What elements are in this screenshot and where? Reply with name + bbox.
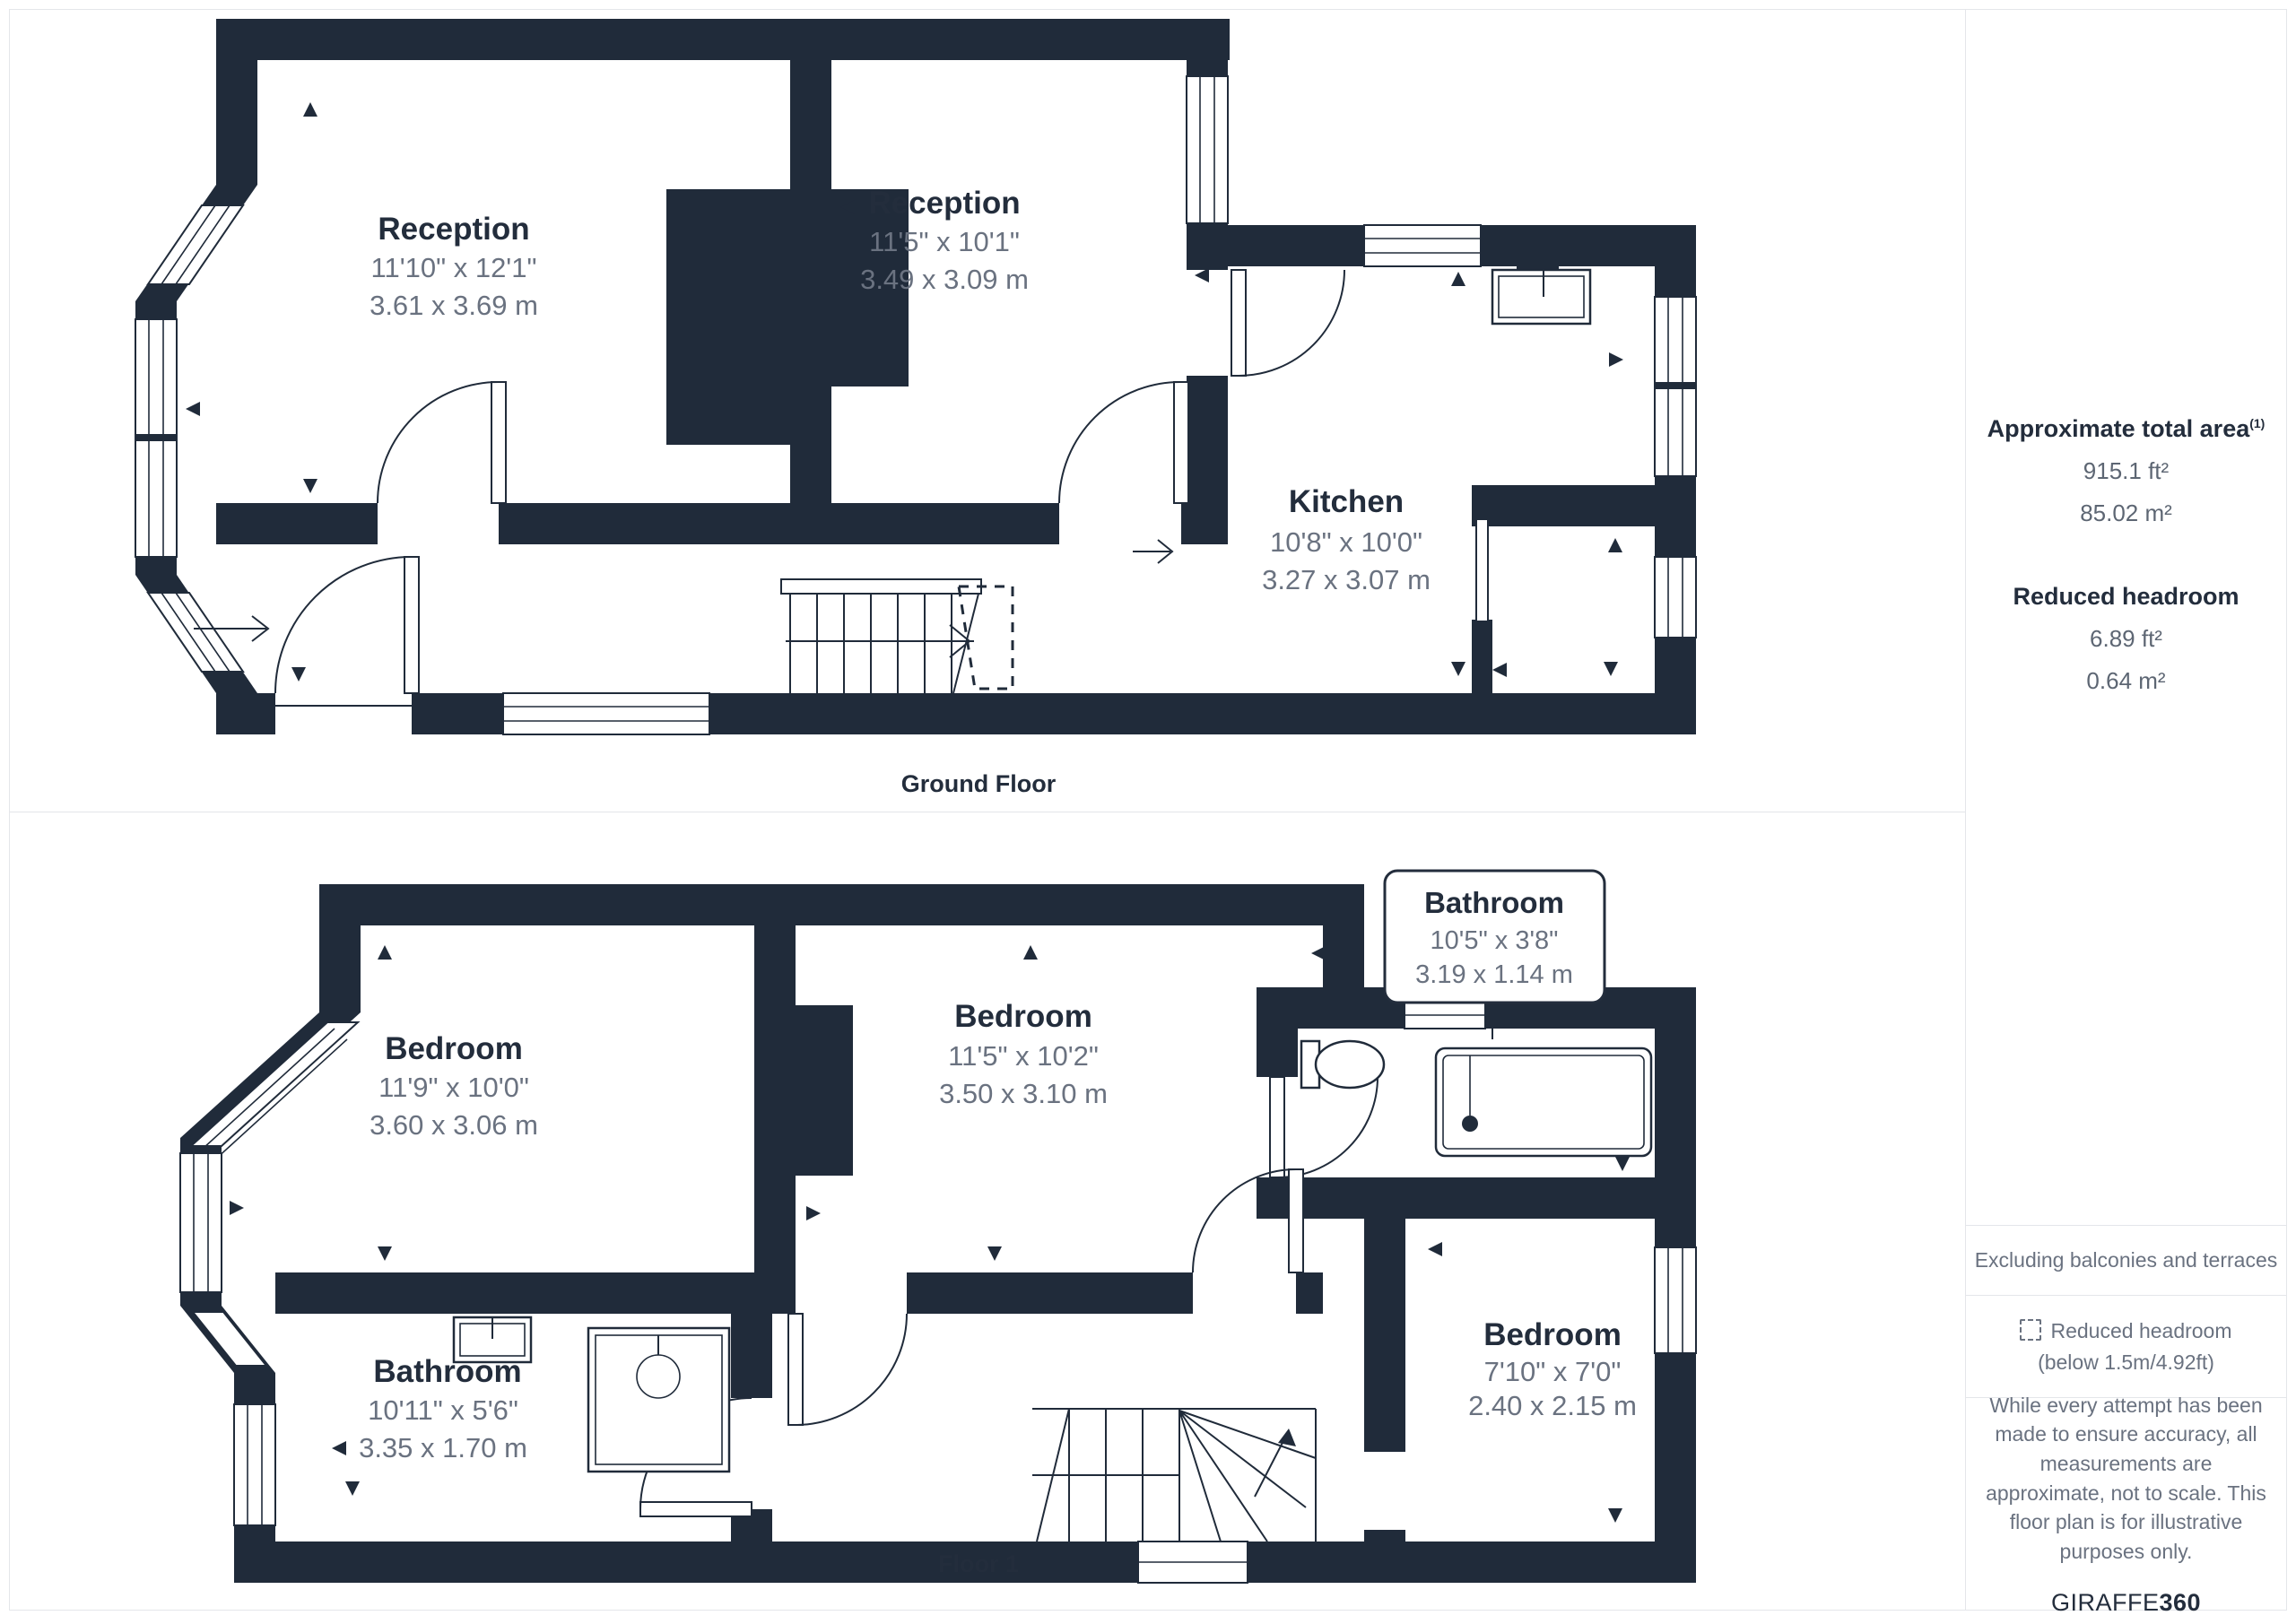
floorplan-column: Reception 11'10" x 12'1" 3.61 x 3.69 m R…: [10, 10, 1966, 1610]
room-dims-imperial: 11'10" x 12'1": [371, 252, 537, 283]
room-dims-metric: 3.61 x 3.69 m: [370, 290, 538, 321]
room-dims-metric: 3.50 x 3.10 m: [939, 1078, 1108, 1109]
floor-1-section: Bathroom 10'5" x 3'8" 3.19 x 1.14 m Bedr…: [10, 812, 1965, 1610]
room-dims-metric: 3.49 x 3.09 m: [860, 264, 1029, 295]
shower: [588, 1328, 729, 1472]
room-dims-metric: 3.27 x 3.07 m: [1262, 564, 1431, 595]
floor-caption-1: Floor 1: [938, 1550, 1019, 1577]
total-area-footnote-marker: (1): [2249, 416, 2265, 430]
legend-text: Reduced headroom: [2050, 1319, 2231, 1342]
room-name: Bedroom: [954, 999, 1092, 1034]
reduced-headroom-legend-box: Reduced headroom (below 1.5m/4.92ft): [1966, 1295, 2286, 1397]
room-name: Bathroom: [373, 1354, 521, 1389]
room-dims-metric: 3.60 x 3.06 m: [370, 1109, 538, 1141]
room-dims-imperial: 10'11" x 5'6": [368, 1394, 518, 1426]
ground-stairs: [781, 579, 1013, 693]
room-label-reception-2: Reception 11'5" x 10'1" 3.49 x 3.09 m: [860, 186, 1029, 295]
floor-caption-ground: Ground Floor: [901, 770, 1057, 797]
disclaimer-box: While every attempt has been made to ens…: [1966, 1397, 2286, 1610]
bathtub: [1436, 1048, 1651, 1156]
reduced-headroom-ft: 6.89 ft²: [1987, 625, 2266, 653]
total-area-m: 85.02 m²: [1987, 499, 2266, 527]
room-dims-imperial: 11'9" x 10'0": [378, 1072, 529, 1103]
info-sidebar: Approximate total area(1) 915.1 ft² 85.0…: [1966, 10, 2286, 1610]
ground-floor-plan: Reception 11'10" x 12'1" 3.61 x 3.69 m R…: [10, 10, 1965, 812]
room-label-bedroom-1: Bedroom 11'9" x 10'0" 3.60 x 3.06 m: [370, 1031, 538, 1141]
room-label-bedroom-3: Bedroom 7'10" x 7'0" 2.40 x 2.15 m: [1468, 1317, 1637, 1421]
room-name: Kitchen: [1289, 484, 1404, 519]
room-dims-imperial: 7'10" x 7'0": [1484, 1356, 1622, 1387]
area-summary-box: Approximate total area(1) 915.1 ft² 85.0…: [1966, 10, 2286, 1225]
room-label-bathroom-left: Bathroom 10'11" x 5'6" 3.35 x 1.70 m: [359, 1354, 527, 1463]
room-name: Bedroom: [385, 1031, 523, 1066]
content-frame: Reception 11'10" x 12'1" 3.61 x 3.69 m R…: [9, 9, 2287, 1611]
excluding-note: Excluding balconies and terraces: [1975, 1248, 2278, 1272]
room-dims-metric: 3.35 x 1.70 m: [359, 1432, 527, 1463]
kitchen-sink: [1492, 270, 1590, 324]
brand-name: GIRAFFE: [2051, 1589, 2160, 1616]
room-name: Reception: [868, 186, 1020, 221]
room-dims-imperial: 11'5" x 10'2": [948, 1040, 1099, 1072]
excluding-note-box: Excluding balconies and terraces: [1966, 1225, 2286, 1295]
room-dims-imperial: 10'5" x 3'8": [1431, 926, 1559, 955]
ground-windows: [135, 76, 1696, 734]
room-label-reception-1: Reception 11'10" x 12'1" 3.61 x 3.69 m: [370, 212, 538, 321]
room-dims-imperial: 10'8" x 10'0": [1270, 526, 1422, 558]
room-name: Bathroom: [1424, 886, 1564, 919]
ground-walls: [135, 19, 1696, 734]
total-area-label-text: Approximate total area: [1987, 415, 2250, 442]
reduced-headroom-label: Reduced headroom: [1987, 583, 2266, 611]
room-dims-metric: 2.40 x 2.15 m: [1468, 1390, 1637, 1421]
toilet: [1301, 1041, 1384, 1088]
floor1-stairs: [1032, 1409, 1316, 1541]
reduced-headroom-legend-line2: (below 1.5m/4.92ft): [2038, 1347, 2214, 1378]
room-label-bedroom-2: Bedroom 11'5" x 10'2" 3.50 x 3.10 m: [939, 999, 1108, 1109]
brand-number: 360: [2159, 1589, 2201, 1616]
reduced-headroom-m: 0.64 m²: [1987, 667, 2266, 695]
floor-1-plan: Bathroom 10'5" x 3'8" 3.19 x 1.14 m Bedr…: [10, 812, 1965, 1610]
room-dims-imperial: 11'5" x 10'1": [869, 226, 1020, 257]
giraffe360-logo: GIRAFFE360: [2051, 1589, 2201, 1617]
ground-floor-section: Reception 11'10" x 12'1" 3.61 x 3.69 m R…: [10, 10, 1965, 812]
room-label-kitchen: Kitchen 10'8" x 10'0" 3.27 x 3.07 m: [1262, 484, 1431, 595]
disclaimer-text: While every attempt has been made to ens…: [1984, 1391, 2269, 1567]
total-area-ft: 915.1 ft²: [1987, 457, 2266, 485]
room-dims-metric: 3.19 x 1.14 m: [1415, 960, 1573, 989]
reduced-headroom-icon: [2020, 1319, 2041, 1341]
reduced-headroom-legend-line1: Reduced headroom: [2020, 1316, 2231, 1347]
room-name: Reception: [378, 212, 529, 247]
room-name: Bedroom: [1483, 1317, 1622, 1352]
floorplan-page: Reception 11'10" x 12'1" 3.61 x 3.69 m R…: [0, 0, 2296, 1624]
total-area-label: Approximate total area(1): [1987, 415, 2266, 443]
